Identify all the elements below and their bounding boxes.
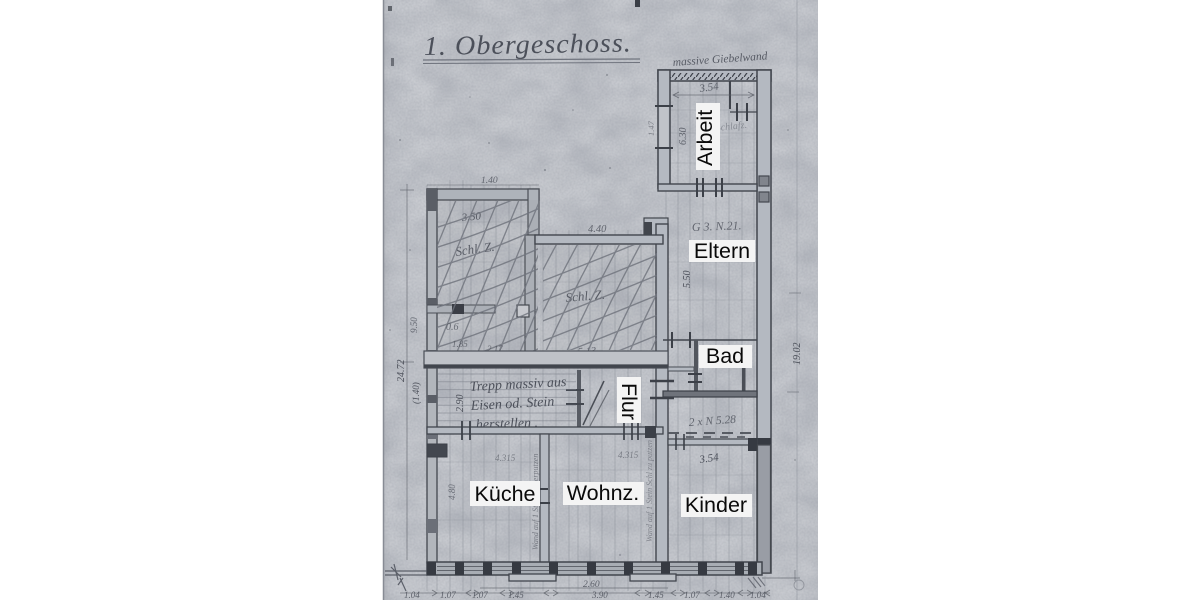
svg-text:1.07: 1.07 (472, 590, 488, 600)
svg-text:(1.40): (1.40) (411, 382, 421, 404)
svg-text:1.07: 1.07 (440, 590, 456, 600)
svg-text:1.04: 1.04 (404, 590, 420, 600)
svg-text:1.07: 1.07 (684, 590, 700, 600)
svg-text:2.60: 2.60 (583, 580, 600, 590)
svg-text:1.45: 1.45 (648, 590, 664, 600)
svg-text:Arbeit: Arbeit (693, 110, 717, 166)
svg-text:1.40: 1.40 (719, 590, 735, 600)
svg-text:1.47: 1.47 (646, 120, 656, 136)
svg-text:1.40: 1.40 (481, 176, 498, 186)
svg-text:Eltern: Eltern (694, 239, 750, 263)
svg-text:Flur: Flur (617, 383, 641, 420)
svg-text:1.45: 1.45 (508, 590, 524, 600)
svg-text:G 3. N.21.: G 3. N.21. (692, 218, 742, 234)
svg-text:4.315: 4.315 (618, 450, 639, 460)
svg-text:Wohnz.: Wohnz. (567, 481, 640, 505)
svg-text:4.80: 4.80 (447, 484, 457, 500)
svg-text:19.02: 19.02 (792, 343, 803, 366)
svg-text:Kinder: Kinder (685, 493, 747, 517)
svg-text:24.72: 24.72 (396, 360, 407, 383)
svg-text:Wand auf 1 Stein Schl zu putze: Wand auf 1 Stein Schl zu putzen (645, 440, 654, 542)
svg-text:4.315: 4.315 (495, 453, 516, 463)
svg-text:5.50: 5.50 (682, 271, 693, 289)
svg-text:4.40: 4.40 (588, 224, 607, 235)
svg-text:6.30: 6.30 (678, 128, 689, 146)
svg-text:1.04: 1.04 (750, 590, 766, 600)
svg-text:3.90: 3.90 (591, 590, 608, 600)
svg-text:Küche: Küche (475, 482, 536, 506)
svg-text:Bad: Bad (706, 344, 744, 368)
svg-text:9.50: 9.50 (409, 317, 419, 333)
svg-text:2.90: 2.90 (455, 395, 466, 413)
svg-text:1. Obergeschoss.: 1. Obergeschoss. (424, 27, 632, 61)
